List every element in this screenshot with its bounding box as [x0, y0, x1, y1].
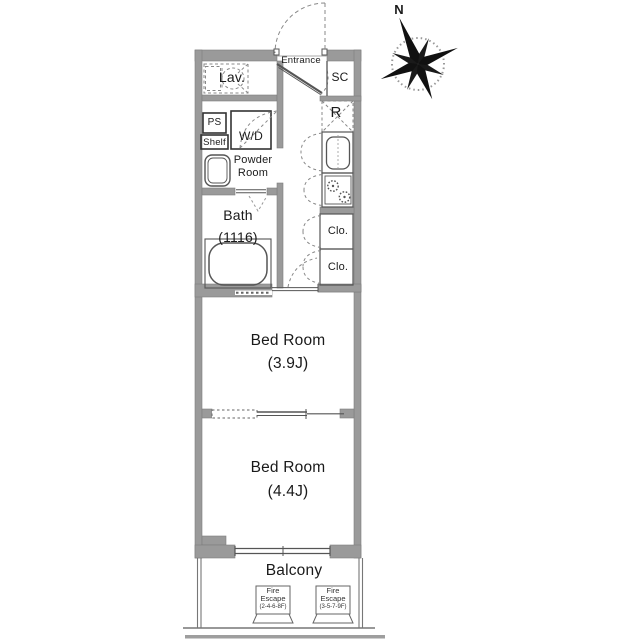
- fire-escape-right-line2: Escape: [315, 595, 351, 603]
- fire-escape-left-line2: Escape: [255, 595, 291, 603]
- compass-rose: [362, 2, 473, 116]
- fire-escape-left-line3: (2-4-6-8F): [255, 603, 291, 611]
- closet-lower-label: Clo.: [328, 261, 348, 273]
- shoe-closet-label: SC: [331, 70, 348, 84]
- entrance-label: Entrance: [281, 55, 321, 66]
- washer-dryer-label: W/D: [239, 129, 263, 143]
- bath-label: Bath: [223, 207, 253, 223]
- balcony-window: [235, 546, 330, 556]
- bedroom1-label: Bed Room: [251, 332, 326, 350]
- kitchen-sink-icon: [322, 132, 353, 173]
- bath-size-label: (1116): [218, 229, 258, 245]
- powder-room-label-2: Room: [238, 167, 268, 179]
- refrigerator-label: R: [330, 104, 341, 121]
- closet-upper-label: Clo.: [328, 225, 348, 237]
- floor-plan-linework: [0, 0, 640, 639]
- ground-line: [185, 635, 385, 639]
- fire-escape-left-text: Fire Escape (2-4-6-8F): [255, 587, 291, 611]
- kitchen-door-arcs: [301, 133, 322, 206]
- lavatory-label: Lav.: [219, 69, 245, 85]
- compass-north-label: N: [394, 2, 404, 17]
- fire-escape-right-text: Fire Escape (3-5-7-9F): [315, 587, 351, 611]
- bedroom2-label: Bed Room: [251, 459, 326, 477]
- fire-escape-right-line3: (3-5-7-9F): [315, 603, 351, 611]
- vanity-sink-icon: [205, 155, 230, 186]
- bathtub-icon: [205, 239, 271, 288]
- closet-door-arcs: [303, 216, 321, 284]
- pipe-space-label: PS: [208, 117, 222, 128]
- bedroom2-size-label: (4.4J): [268, 483, 309, 501]
- wall-dotted-strips: [212, 291, 272, 419]
- stove-icon: [322, 173, 353, 207]
- floor-plan: N Entrance Lav. SC R PS Shelf W/D Powder…: [0, 0, 640, 639]
- sliding-partition: [257, 409, 344, 419]
- powder-room-label-1: Powder: [234, 154, 273, 166]
- balcony-label: Balcony: [266, 562, 323, 580]
- shelf-label: Shelf: [203, 137, 226, 148]
- bedroom1-size-label: (3.9J): [268, 355, 309, 373]
